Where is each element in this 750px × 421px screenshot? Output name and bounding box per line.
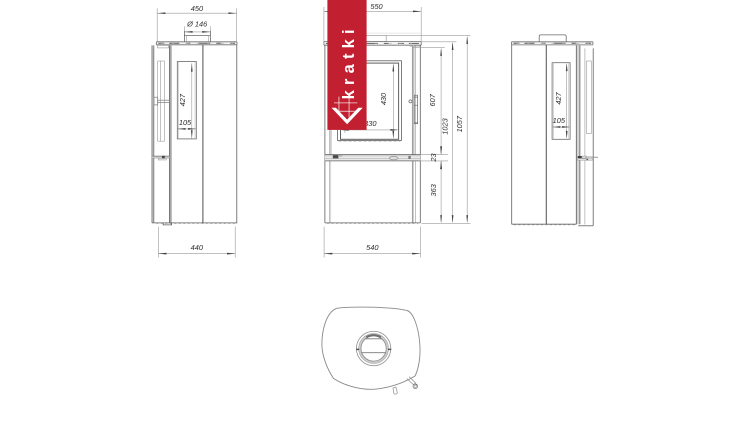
svg-text:kratki: kratki [340,24,358,99]
svg-text:607: 607 [428,93,437,106]
svg-text:427: 427 [178,93,187,106]
svg-text:23: 23 [429,153,438,163]
svg-text:540: 540 [366,243,379,252]
svg-text:1057: 1057 [455,115,464,132]
svg-text:105: 105 [179,118,192,127]
svg-text:363: 363 [429,183,438,196]
svg-text:427: 427 [554,91,563,104]
svg-text:105: 105 [553,116,566,125]
svg-text:450: 450 [191,4,204,13]
svg-text:440: 440 [191,243,204,252]
svg-text:430: 430 [379,92,388,105]
svg-text:550: 550 [370,2,383,11]
svg-text:Ø 146: Ø 146 [186,20,208,29]
svg-text:1023: 1023 [441,117,450,134]
